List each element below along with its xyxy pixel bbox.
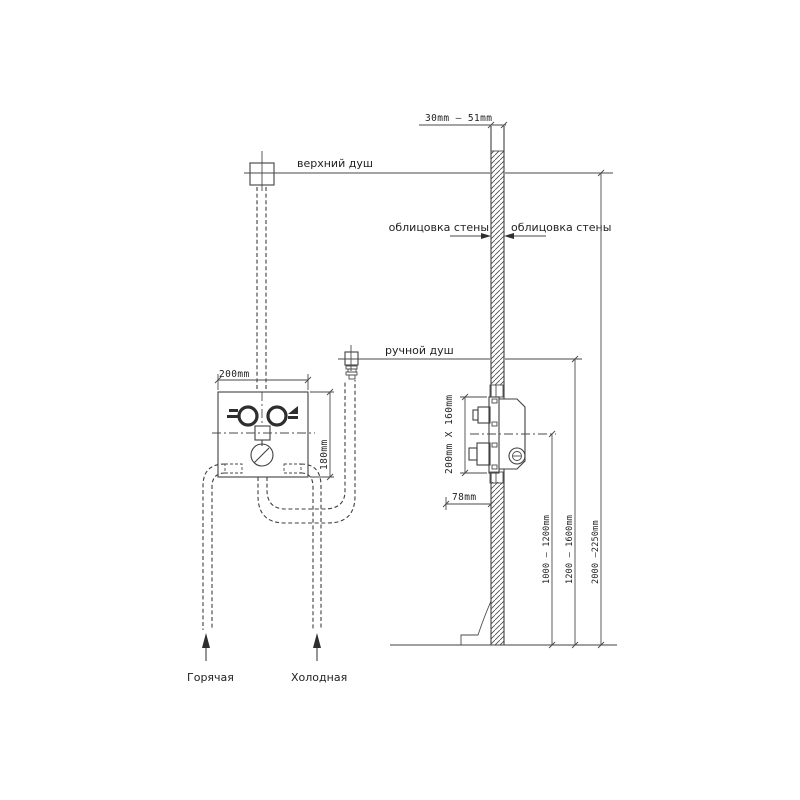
label-height-mixer: 1000 — 1200mm: [542, 515, 552, 584]
mixer-box-front: [212, 392, 315, 477]
label-box-height: 180mm: [319, 439, 330, 470]
label-hot-supply: Горячая: [187, 671, 234, 684]
label-box-depth: 78mm: [452, 492, 476, 503]
diagram-svg: верхний душ: [0, 0, 800, 800]
dim-box-width: 200mm: [215, 369, 311, 390]
label-side-box-dims: 200mm X 160mm: [444, 394, 455, 474]
label-wall-thickness: 30mm — 51mm: [425, 113, 492, 124]
label-wall-cladding-right: облицовка стены: [511, 221, 611, 234]
cold-valve-circle: [268, 407, 286, 425]
dim-height-upper-shower: 2000 —2250mm: [591, 170, 604, 648]
dim-box-depth: 78mm: [443, 492, 494, 510]
label-box-width: 200mm: [219, 369, 250, 380]
mixer-box-side: [469, 385, 556, 483]
wall-section: [491, 126, 504, 645]
label-upper-shower: верхний душ: [297, 157, 373, 170]
label-hand-shower: ручной душ: [385, 344, 454, 357]
cold-supply-pipe: [301, 464, 321, 630]
side-view: ручной душ 30mm — 51mm облицовка стены о…: [362, 113, 617, 648]
hand-shower-fitting: [338, 345, 364, 379]
label-height-hand-shower: 1200 — 1600mm: [565, 515, 575, 584]
label-wall-cladding-left: облицовка стены: [389, 221, 489, 234]
tray-profile: [461, 601, 491, 645]
hot-port: [225, 464, 242, 473]
diverter-valve: [251, 440, 273, 466]
dim-box-height: 180mm: [310, 389, 334, 480]
installation-diagram: верхний душ: [0, 0, 800, 800]
upper-shower-outlet: [250, 151, 274, 191]
wall-cladding-left: облицовка стены: [389, 221, 491, 239]
hot-supply-pipe: [203, 464, 225, 630]
label-cold-supply: Холодная: [291, 671, 347, 684]
label-height-upper-shower: 2000 —2250mm: [591, 520, 601, 584]
riser-pipe: [257, 187, 266, 392]
cold-handle-icon: [288, 406, 298, 419]
wall-cladding-right: облицовка стены: [504, 221, 611, 239]
dim-wall-thickness: 30mm — 51mm: [419, 113, 507, 128]
hot-supply-arrow: [202, 633, 210, 661]
cold-supply-arrow: [313, 633, 321, 661]
dim-height-mixer: 1000 — 1200mm: [542, 431, 555, 648]
cold-port: [284, 464, 301, 473]
hot-valve-circle: [239, 407, 257, 425]
dim-height-hand-shower: 1200 — 1600mm: [565, 356, 578, 648]
dim-side-box: 200mm X 160mm: [444, 394, 487, 476]
hot-handle-icon: [227, 409, 238, 418]
